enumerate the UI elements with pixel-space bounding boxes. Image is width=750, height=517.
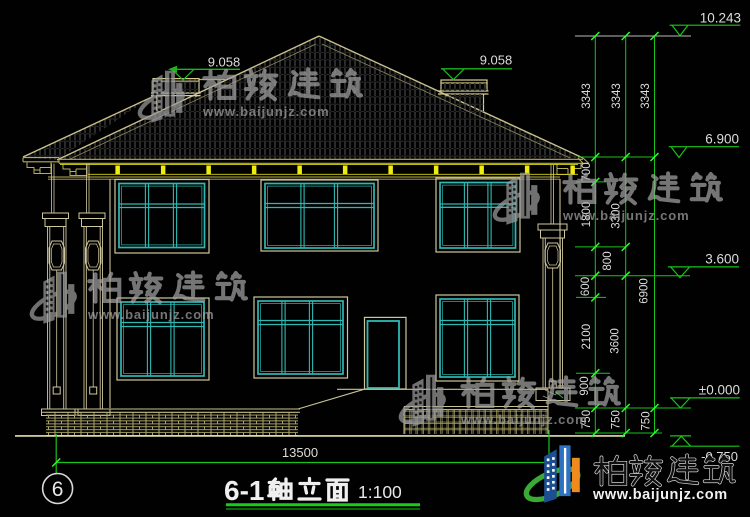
svg-text:6.900: 6.900 [705, 132, 739, 147]
svg-text:3343: 3343 [640, 83, 652, 109]
svg-text:±0.000: ±0.000 [699, 383, 740, 398]
svg-text:750: 750 [641, 411, 653, 430]
svg-text:www.baijunjz.com: www.baijunjz.com [592, 487, 728, 503]
svg-text:3343: 3343 [581, 83, 593, 109]
svg-text:1:100: 1:100 [358, 482, 402, 502]
svg-text:www.baijunjz.com: www.baijunjz.com [562, 208, 690, 223]
svg-text:2100: 2100 [581, 324, 593, 350]
svg-text:750: 750 [611, 410, 623, 429]
svg-text:6: 6 [52, 478, 64, 501]
svg-text:6900: 6900 [639, 278, 651, 304]
svg-text:13500: 13500 [282, 445, 318, 460]
svg-text:900: 900 [579, 376, 591, 395]
svg-text:www.baijunjz.com: www.baijunjz.com [460, 412, 588, 427]
svg-text:10.243: 10.243 [700, 11, 741, 26]
svg-text:3343: 3343 [611, 83, 623, 109]
svg-text:9.058: 9.058 [208, 55, 241, 70]
svg-text:3.600: 3.600 [705, 252, 739, 267]
svg-text:6-1: 6-1 [224, 475, 264, 506]
svg-text:800: 800 [602, 251, 614, 270]
svg-text:600: 600 [580, 277, 592, 296]
svg-text:9.058: 9.058 [480, 53, 513, 68]
svg-text:www.baijunjz.com: www.baijunjz.com [87, 307, 215, 322]
svg-text:www.baijunjz.com: www.baijunjz.com [202, 104, 330, 119]
svg-text:3600: 3600 [610, 328, 622, 354]
